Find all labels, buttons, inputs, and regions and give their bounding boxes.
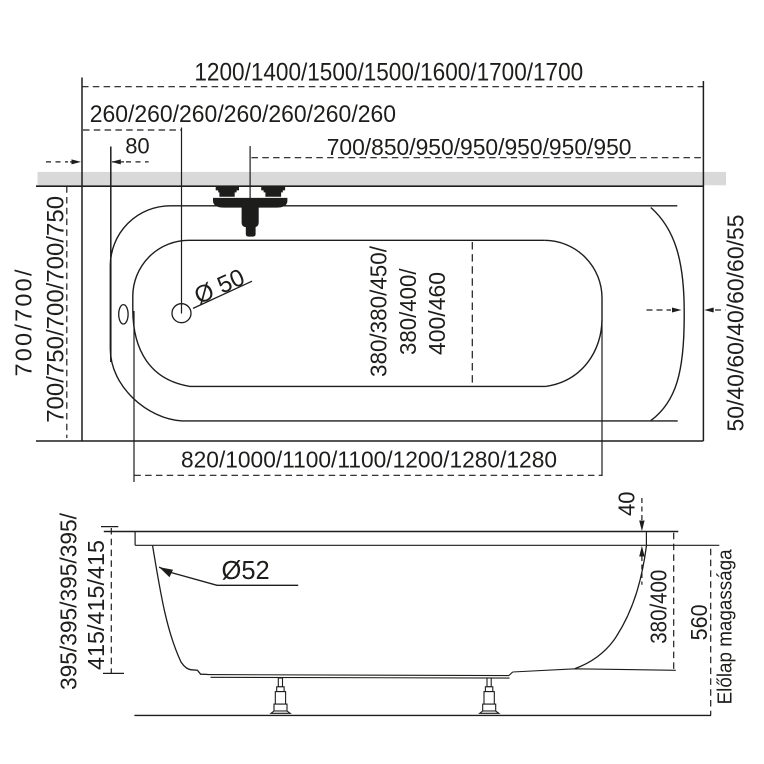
svg-text:415/415/415: 415/415/415 (83, 540, 109, 670)
svg-text:380/400/: 380/400/ (395, 268, 421, 355)
svg-text:260/260/260/260/260/260/260: 260/260/260/260/260/260/260 (90, 101, 396, 128)
svg-text:700/700/: 700/700/ (11, 269, 37, 376)
svg-text:820/1000/1100/1100/1200/1280/1: 820/1000/1100/1100/1200/1280/1280 (181, 446, 557, 472)
svg-text:400/460: 400/460 (424, 272, 450, 355)
svg-text:Előlap magassága: Előlap magassága (715, 549, 737, 705)
svg-text:50/40/60/40/60/60/55: 50/40/60/40/60/60/55 (723, 215, 749, 432)
svg-text:380/400: 380/400 (646, 570, 672, 644)
svg-text:80: 80 (125, 133, 149, 158)
svg-text:395/395/395/395/: 395/395/395/395/ (56, 512, 82, 690)
svg-text:700/750/700/700/750: 700/750/700/700/750 (43, 196, 70, 423)
svg-text:380/380/450/: 380/380/450/ (366, 245, 392, 377)
svg-text:40: 40 (614, 492, 640, 517)
svg-text:560: 560 (686, 604, 712, 640)
svg-text:1200/1400/1500/1500/1600/1700/: 1200/1400/1500/1500/1600/1700/1700 (194, 58, 583, 86)
svg-text:Ø52: Ø52 (222, 557, 270, 585)
svg-text:700/850/950/950/950/950/950: 700/850/950/950/950/950/950 (327, 134, 632, 160)
